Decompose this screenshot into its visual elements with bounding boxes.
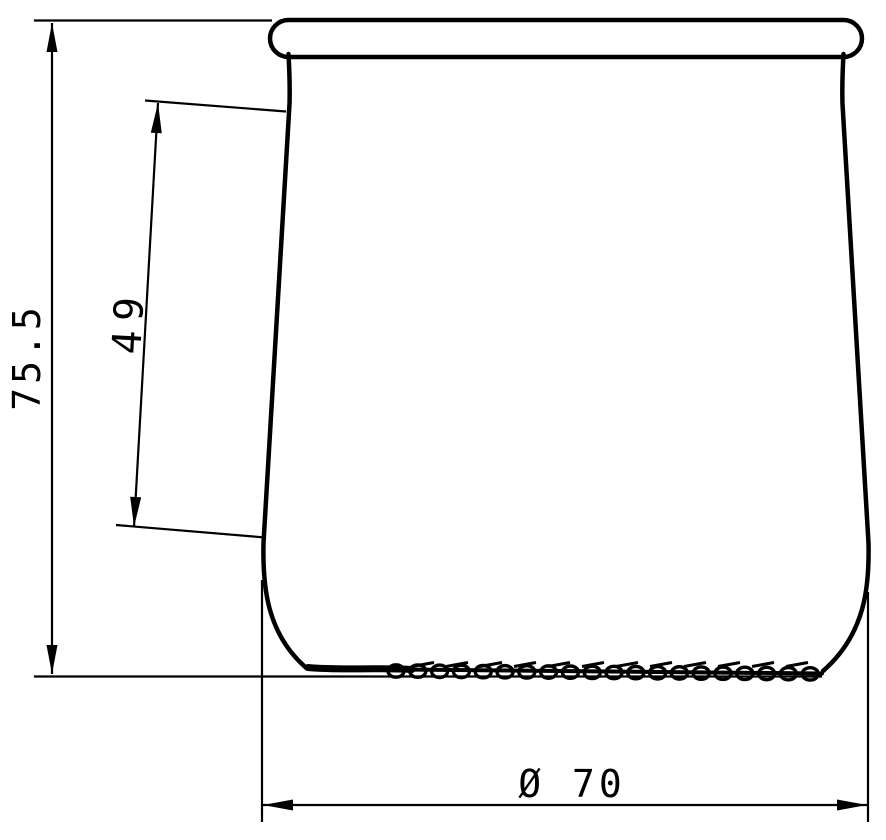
diameter-arrow-left [263, 800, 293, 811]
base-dash [752, 663, 774, 667]
jar-rim [270, 20, 862, 57]
jar-outline [263, 20, 868, 680]
jar-right-wall [823, 54, 869, 671]
height-arrow-up [47, 23, 58, 52]
drawing-canvas: 75.5 49 Ø 70 [0, 0, 886, 840]
side-arrow-top [151, 103, 162, 133]
technical-drawing-svg: 75.5 49 Ø 70 [0, 0, 886, 840]
base-wave-thick-start [308, 668, 412, 670]
base-dash [650, 663, 672, 667]
dimension-base-diameter: Ø 70 [262, 580, 868, 822]
diameter-dimension-label: Ø 70 [518, 762, 626, 806]
side-ext-line-bottom [116, 525, 265, 538]
base-dash [718, 663, 740, 667]
dimension-side-wall: 49 [104, 101, 286, 538]
jar-left-wall [263, 54, 307, 669]
height-dimension-label: 75.5 [5, 303, 49, 411]
side-dimension-label: 49 [104, 287, 154, 356]
side-arrow-bottom [130, 497, 141, 527]
side-ext-line-top [145, 101, 286, 112]
base-dash [786, 663, 808, 667]
diameter-arrow-right [837, 800, 867, 811]
height-arrow-down [47, 645, 58, 674]
base-dash [582, 663, 604, 667]
base-dash [412, 663, 434, 667]
